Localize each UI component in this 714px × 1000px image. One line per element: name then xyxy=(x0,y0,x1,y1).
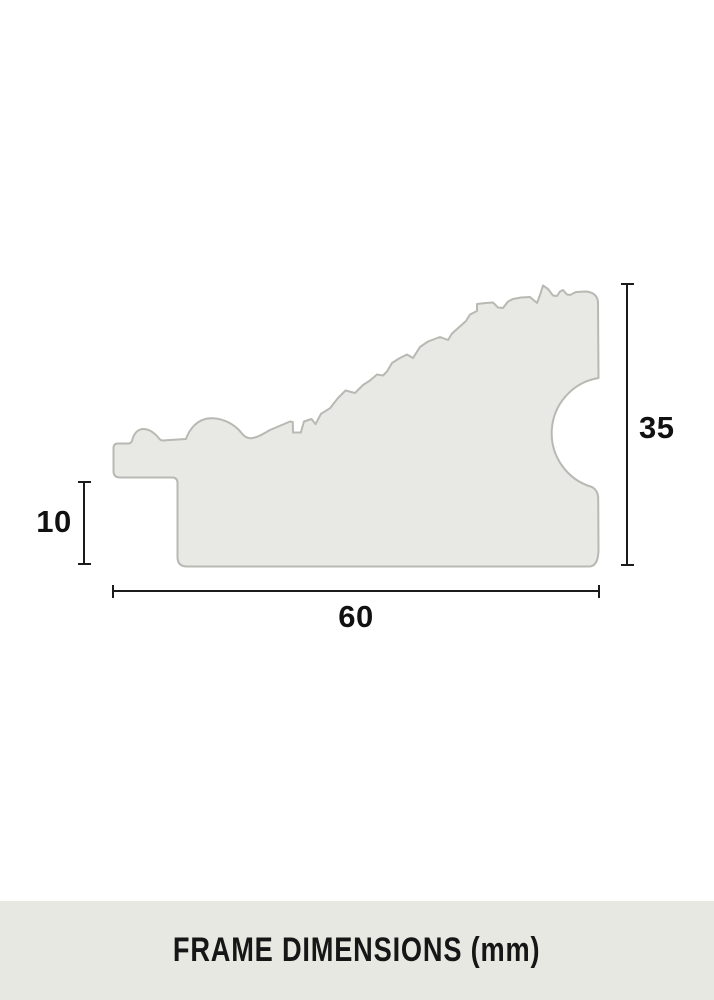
dimension-cap-top xyxy=(621,283,634,285)
dimension-line xyxy=(83,482,85,565)
dimension-label-width: 60 xyxy=(113,601,599,632)
diagram-canvas: 35 10 60 FRAME DIMENSIONS (mm) xyxy=(0,0,714,1000)
dimension-label-height: 35 xyxy=(639,412,674,443)
footer-bar: FRAME DIMENSIONS (mm) xyxy=(0,901,714,1000)
profile-cross-section-svg xyxy=(0,0,714,1000)
dimension-cap-left xyxy=(112,585,114,598)
footer-title: FRAME DIMENSIONS (mm) xyxy=(173,931,540,970)
dimension-cap-bottom xyxy=(78,563,91,565)
dimension-line xyxy=(113,590,599,592)
dimension-line xyxy=(626,284,628,565)
dimension-cap-right xyxy=(598,585,600,598)
dimension-label-rabbet: 10 xyxy=(32,506,76,537)
profile-outline xyxy=(114,286,599,567)
dimension-cap-top xyxy=(78,481,91,483)
dimension-cap-bottom xyxy=(621,564,634,566)
